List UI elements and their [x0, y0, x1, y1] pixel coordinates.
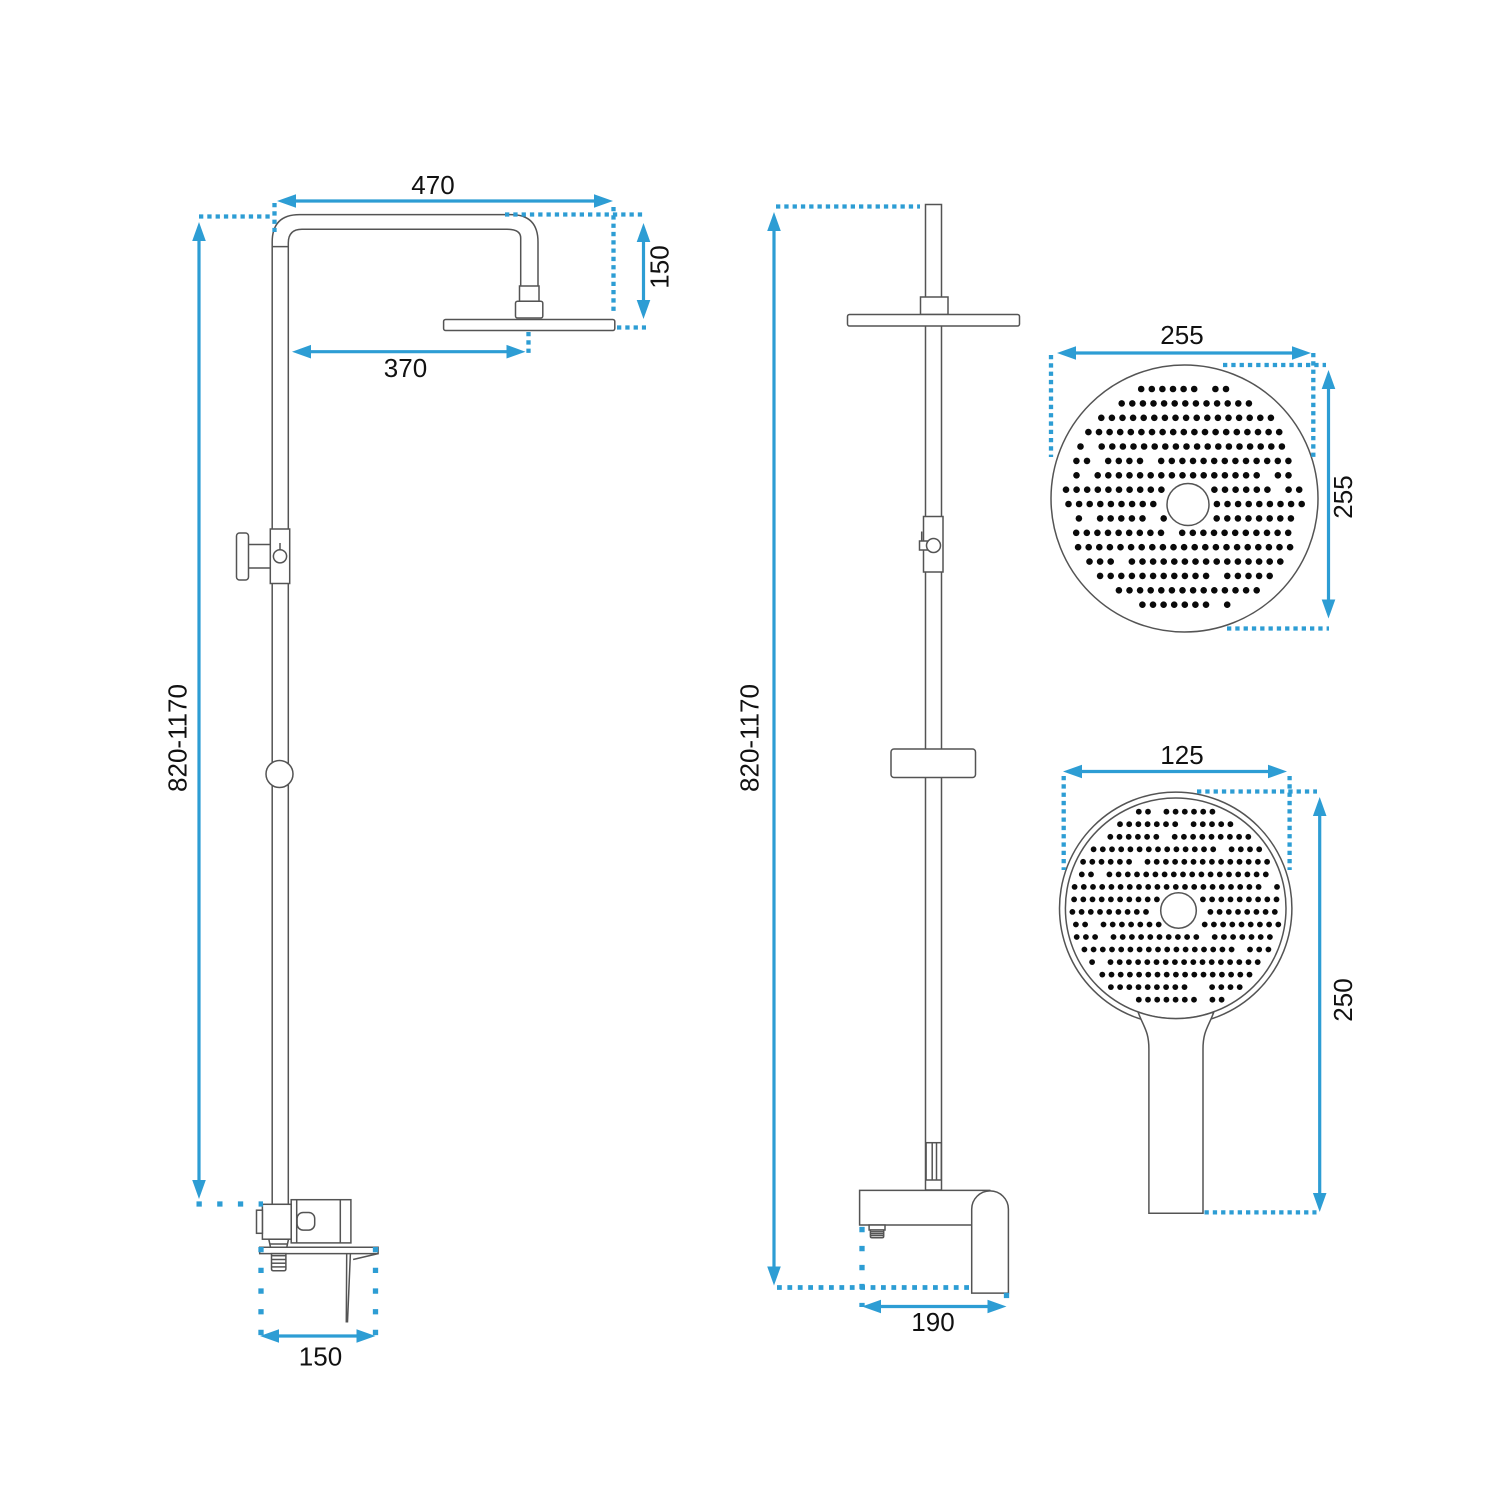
svg-text:255: 255 — [1328, 475, 1358, 518]
svg-text:470: 470 — [411, 170, 454, 200]
svg-text:190: 190 — [911, 1307, 954, 1337]
svg-text:370: 370 — [384, 353, 427, 383]
svg-text:125: 125 — [1160, 740, 1203, 770]
svg-text:820-1170: 820-1170 — [163, 684, 193, 792]
svg-text:255: 255 — [1160, 320, 1203, 350]
svg-text:150: 150 — [299, 1342, 342, 1372]
svg-text:820-1170: 820-1170 — [735, 684, 765, 792]
svg-text:150: 150 — [645, 245, 675, 288]
svg-text:250: 250 — [1328, 978, 1358, 1021]
